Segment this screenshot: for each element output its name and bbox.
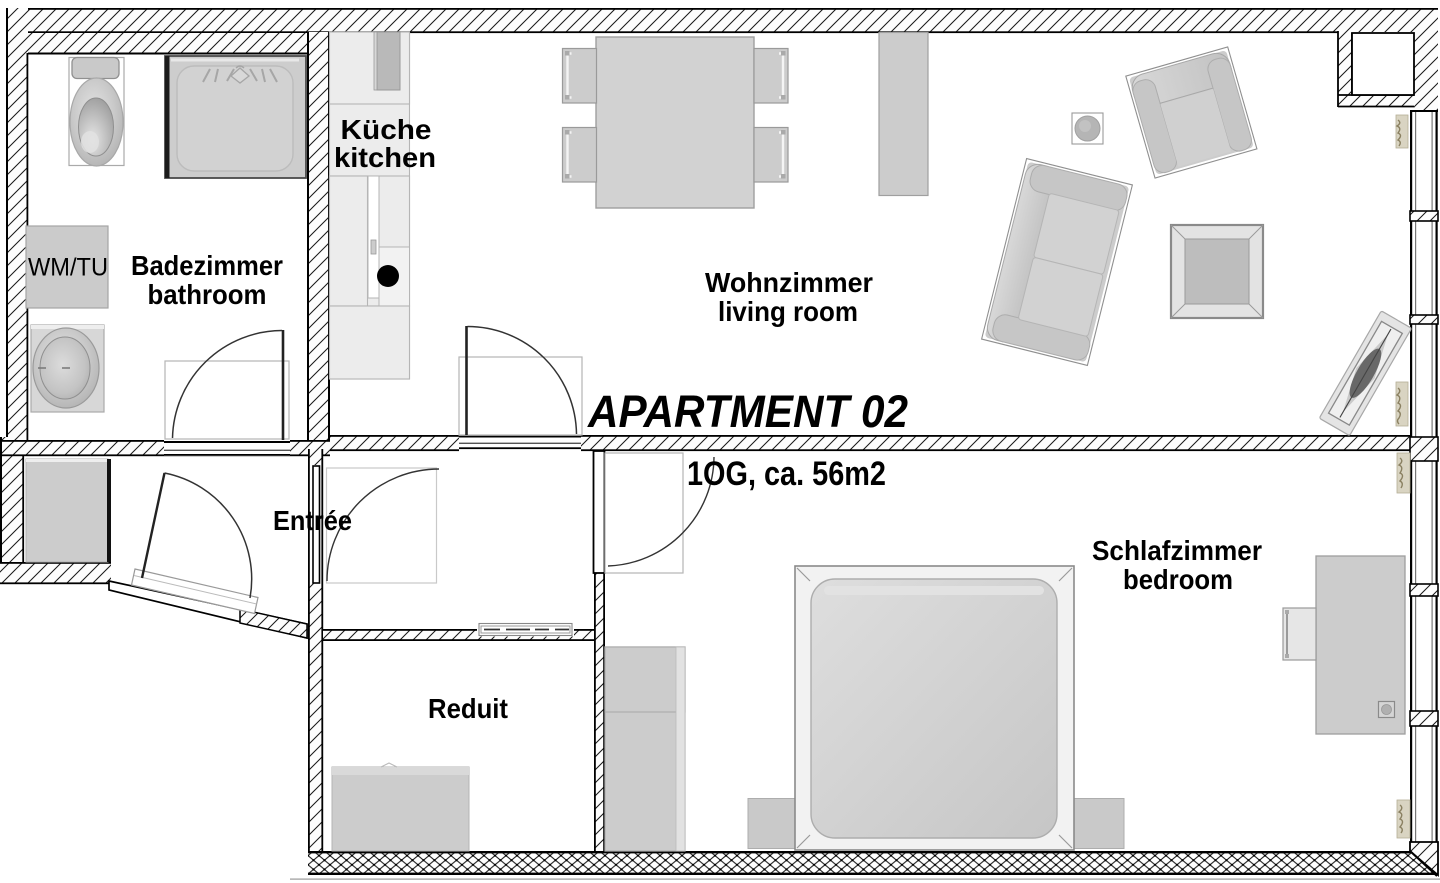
svg-text:WM/TU: WM/TU: [28, 254, 108, 282]
svg-text:Entrée: Entrée: [273, 505, 352, 536]
svg-text:bedroom: bedroom: [1123, 564, 1233, 595]
svg-text:1OG, ca. 56m2: 1OG, ca. 56m2: [687, 455, 886, 493]
svg-text:Badezimmer: Badezimmer: [131, 250, 283, 281]
svg-text:Küche: Küche: [341, 114, 432, 145]
svg-text:kitchen: kitchen: [334, 142, 436, 173]
svg-text:Reduit: Reduit: [428, 693, 508, 724]
svg-text:bathroom: bathroom: [148, 279, 267, 310]
svg-text:living room: living room: [718, 296, 858, 327]
svg-text:Wohnzimmer: Wohnzimmer: [705, 267, 873, 298]
svg-text:Schlafzimmer: Schlafzimmer: [1092, 535, 1262, 566]
svg-text:APARTMENT 02: APARTMENT 02: [587, 386, 908, 437]
